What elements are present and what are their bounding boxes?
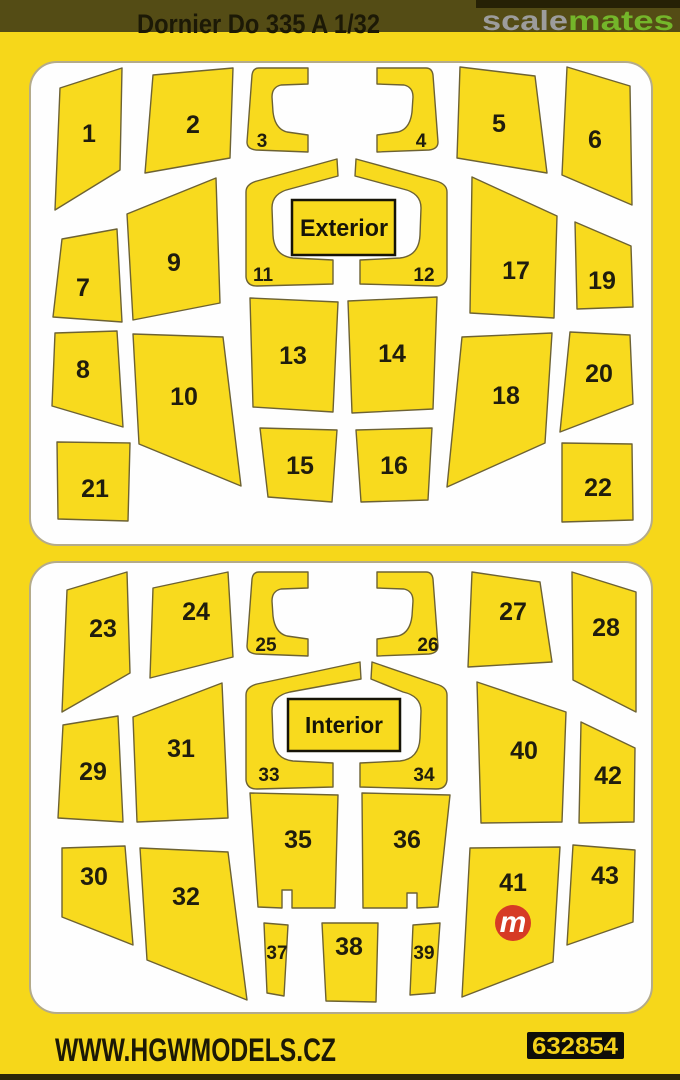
mask-piece-16-label: 16 [380,452,408,480]
mask-piece-7-label: 7 [76,274,90,302]
mask-piece-17-label: 17 [502,257,530,285]
mask-piece-14-label: 14 [378,340,406,368]
mask-piece-21-label: 21 [81,475,109,503]
mask-piece-28-label: 28 [592,614,620,642]
mask-piece-30-label: 30 [80,863,108,891]
mask-piece-26-label: 26 [417,635,438,656]
exterior-label: Exterior [300,215,388,242]
website-text: WWW.HGWMODELS.CZ [55,1032,336,1068]
mask-piece-37-label: 37 [266,943,287,964]
hgw-logo-m: m [500,906,527,939]
mask-piece-20-label: 20 [585,360,613,388]
mask-piece-42-label: 42 [594,762,622,790]
mask-piece-12-label: 12 [413,265,434,286]
mask-piece-33-label: 33 [258,765,279,786]
mask-piece-9-label: 9 [167,249,181,277]
mask-piece-5-label: 5 [492,110,506,138]
mask-piece-40-label: 40 [510,737,538,765]
sheet-canvas: Dornier Do 335 A 1/32 scalemates 1 2 3 4… [0,0,680,1080]
mask-piece-31-label: 31 [167,735,195,763]
watermark-scale: scale [482,5,568,36]
interior-label: Interior [305,712,383,738]
mask-piece-36-label: 36 [393,826,421,854]
watermark-mates: mates [568,5,674,36]
scalemates-watermark: scalemates [482,5,674,36]
mask-piece-24-label: 24 [182,598,210,626]
mask-piece-19-label: 19 [588,267,616,295]
mask-piece-13-label: 13 [279,342,307,370]
mask-piece-32-label: 32 [172,883,200,911]
mask-piece-22-label: 22 [584,474,612,502]
mask-piece-1-label: 1 [82,120,96,148]
mask-piece-11-label: 11 [253,265,274,286]
mask-piece-43-label: 43 [591,862,619,890]
mask-piece-6-label: 6 [588,126,602,154]
mask-piece-27-label: 27 [499,598,527,626]
mask-piece-38-label: 38 [335,933,363,961]
mask-piece-34-label: 34 [413,765,435,786]
mask-piece-41-label: 41 [499,869,527,897]
mask-piece-25-label: 25 [255,635,277,656]
mask-piece-8-label: 8 [76,356,90,384]
mask-piece-3-label: 3 [257,131,268,152]
masking-sheet-scan: Dornier Do 335 A 1/32 scalemates 1 2 3 4… [0,0,680,1080]
page-title: Dornier Do 335 A 1/32 [137,9,380,39]
mask-piece-15-label: 15 [286,452,314,480]
mask-piece-29-label: 29 [79,758,107,786]
mask-piece-10-label: 10 [170,383,198,411]
mask-piece-2-label: 2 [186,111,200,139]
mask-piece-4-label: 4 [416,131,427,152]
product-code: 632854 [532,1033,619,1060]
mask-piece-39-label: 39 [413,943,434,964]
bottom-strip [0,1074,680,1080]
mask-piece-23-label: 23 [89,615,117,643]
mask-piece-35-label: 35 [284,826,312,854]
mask-piece-18-label: 18 [492,382,520,410]
